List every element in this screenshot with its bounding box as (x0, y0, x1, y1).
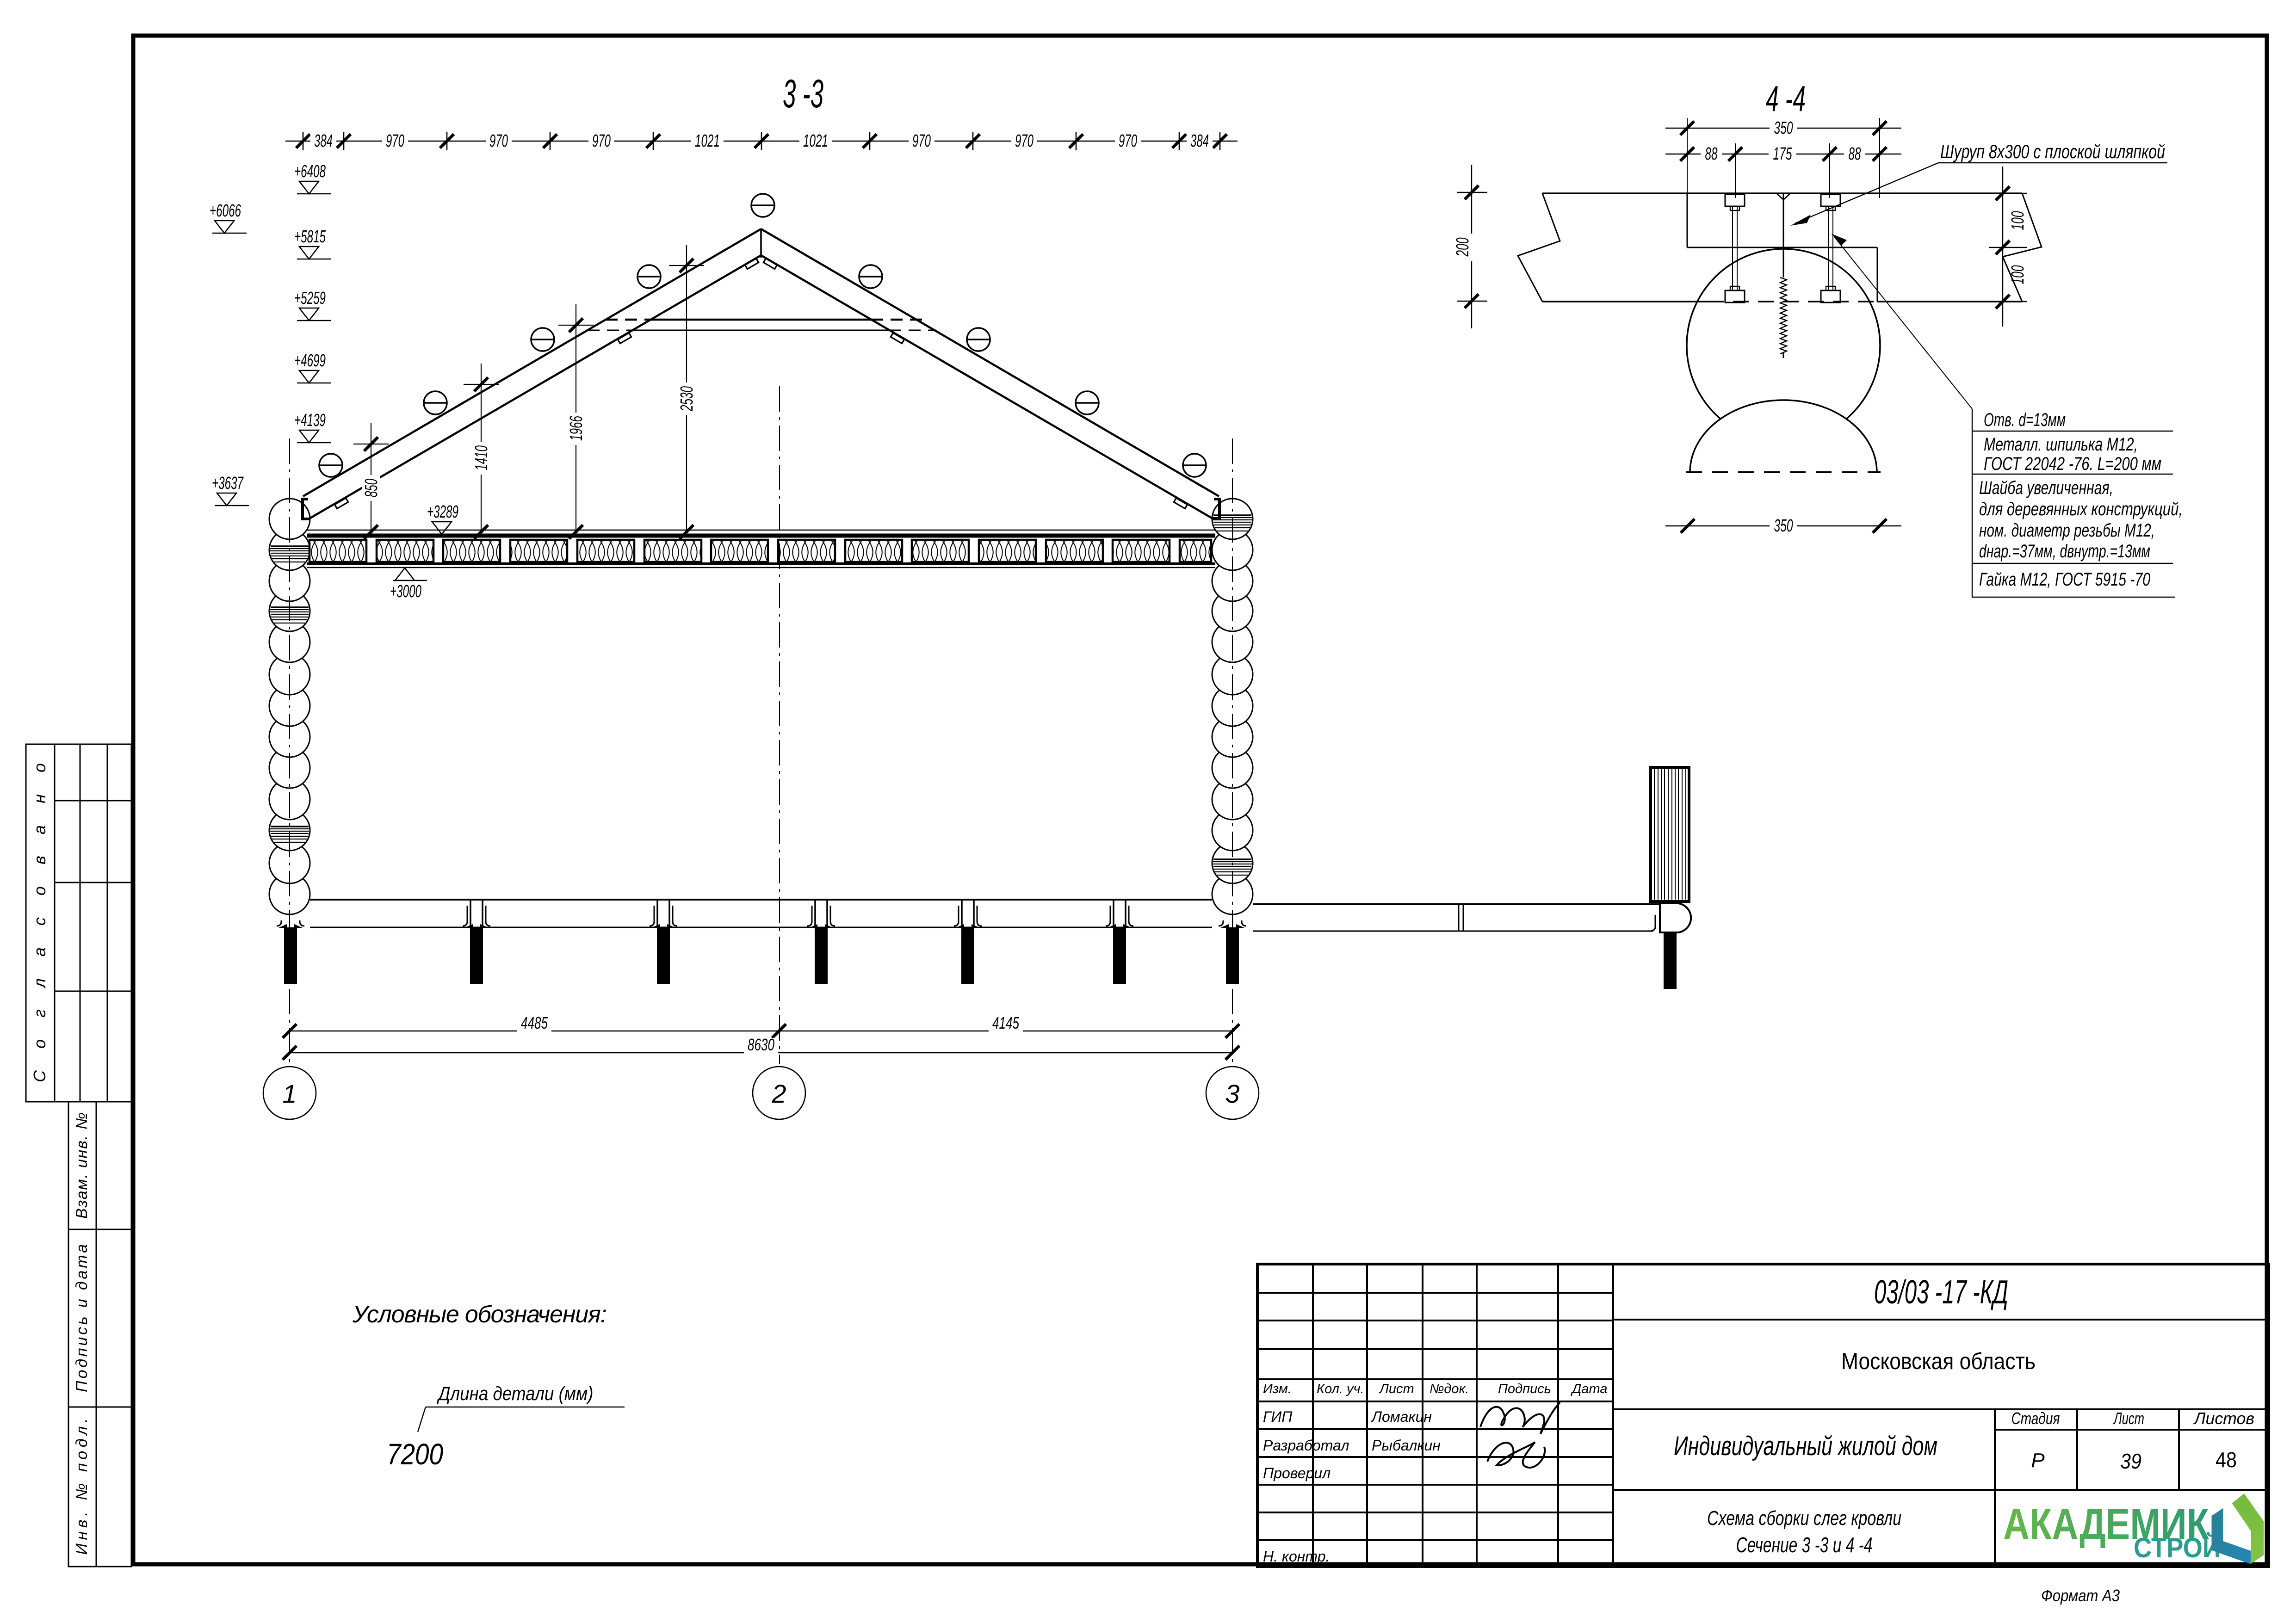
svg-text:Лист: Лист (1379, 1382, 1414, 1396)
svg-text:970: 970 (1119, 131, 1137, 151)
svg-text:Инв. № подл.: Инв. № подл. (73, 1419, 91, 1555)
svg-text:88: 88 (1849, 144, 1861, 164)
svg-text:Листов: Листов (2193, 1409, 2254, 1428)
svg-text:Кол. уч.: Кол. уч. (1317, 1382, 1364, 1396)
svg-text:Рыбалкин: Рыбалкин (1372, 1437, 1441, 1454)
svg-text:Гайка М12, ГОСТ 5915 -70: Гайка М12, ГОСТ 5915 -70 (1979, 569, 2150, 590)
svg-text:384: 384 (314, 131, 333, 151)
svg-text:3: 3 (1225, 1079, 1239, 1108)
svg-text:Формат А3: Формат А3 (2041, 1586, 2120, 1605)
svg-text:ном. диаметр резьбы М12,: ном. диаметр резьбы М12, (1979, 520, 2155, 541)
svg-text:+3637: +3637 (212, 474, 244, 493)
svg-text:970: 970 (592, 131, 611, 151)
svg-text:Схема сборки слег кровли: Схема сборки слег кровли (1707, 1507, 1901, 1530)
svg-text:Индивидуальный жилой дом: Индивидуальный жилой дом (1674, 1431, 1937, 1461)
svg-text:4145: 4145 (992, 1013, 1020, 1032)
svg-text:dнар.=37мм, dвнутр.=13мм: dнар.=37мм, dвнутр.=13мм (1979, 541, 2150, 562)
svg-text:Шуруп 8х300 с плоской шляпкой: Шуруп 8х300 с плоской шляпкой (1940, 141, 2165, 162)
svg-text:Ломакин: Ломакин (1371, 1408, 1432, 1425)
svg-text:Подпись: Подпись (1498, 1382, 1551, 1396)
svg-text:350: 350 (1774, 516, 1793, 536)
svg-text:+4139: +4139 (294, 411, 326, 430)
svg-text:Лист: Лист (2113, 1409, 2144, 1428)
svg-text:Разработал: Разработал (1263, 1437, 1349, 1454)
svg-text:1021: 1021 (803, 131, 828, 151)
svg-text:Дата: Дата (1571, 1382, 1608, 1396)
svg-text:Длина детали (мм): Длина детали (мм) (437, 1382, 594, 1404)
svg-text:Московская область: Московская область (1841, 1348, 2036, 1374)
svg-text:+6408: +6408 (294, 162, 326, 181)
svg-text:39: 39 (2120, 1449, 2141, 1473)
svg-text:Подпись и дата: Подпись и дата (73, 1244, 91, 1392)
svg-text:4485: 4485 (521, 1013, 548, 1032)
svg-text:4 -4: 4 -4 (1766, 78, 1806, 119)
svg-text:850: 850 (362, 479, 381, 497)
svg-text:970: 970 (489, 131, 508, 151)
svg-text:ГИП: ГИП (1263, 1408, 1293, 1425)
svg-text:№док.: №док. (1430, 1382, 1469, 1396)
svg-text:СТРОЙ: СТРОЙ (2134, 1532, 2221, 1563)
svg-text:Шайба увеличенная,: Шайба увеличенная, (1979, 478, 2113, 498)
svg-text:175: 175 (1773, 144, 1793, 164)
svg-text:Отв. d=13мм: Отв. d=13мм (1984, 410, 2066, 430)
svg-text:+5259: +5259 (294, 289, 326, 308)
svg-text:Р: Р (2031, 1449, 2045, 1472)
svg-text:100: 100 (2008, 211, 2028, 230)
svg-text:ГОСТ 22042 -76. L=200 мм: ГОСТ 22042 -76. L=200 мм (1984, 454, 2161, 474)
svg-text:7200: 7200 (387, 1438, 443, 1471)
svg-text:03/03 -17 -КД: 03/03 -17 -КД (1874, 1274, 2008, 1311)
svg-text:970: 970 (386, 131, 404, 151)
svg-text:384: 384 (1190, 131, 1209, 151)
svg-text:2530: 2530 (677, 386, 697, 412)
svg-text:для деревянных конструкций,: для деревянных конструкций, (1979, 499, 2183, 519)
svg-text:100: 100 (2008, 265, 2028, 284)
svg-text:1966: 1966 (567, 415, 586, 441)
svg-text:200: 200 (1453, 238, 1473, 257)
svg-text:350: 350 (1774, 118, 1793, 138)
svg-text:1021: 1021 (695, 131, 720, 151)
svg-text:48: 48 (2216, 1448, 2237, 1472)
svg-text:Изм.: Изм. (1263, 1382, 1292, 1396)
svg-text:+4699: +4699 (294, 351, 326, 370)
svg-text:+5815: +5815 (294, 227, 326, 247)
svg-text:Проверил: Проверил (1263, 1465, 1331, 1481)
svg-text:8630: 8630 (748, 1035, 774, 1054)
svg-text:1: 1 (282, 1079, 297, 1108)
svg-text:970: 970 (1015, 131, 1034, 151)
svg-text:88: 88 (1705, 144, 1718, 164)
svg-text:Н. контр.: Н. контр. (1263, 1548, 1330, 1565)
svg-text:Сечение 3 -3 и 4 -4: Сечение 3 -3 и 4 -4 (1736, 1533, 1873, 1557)
svg-text:+3000: +3000 (390, 582, 421, 601)
svg-text:2: 2 (771, 1079, 786, 1108)
svg-text:Металл. шпилька М12,: Металл. шпилька М12, (1984, 434, 2138, 455)
svg-text:+3289: +3289 (427, 502, 458, 522)
svg-text:Стадия: Стадия (2011, 1409, 2060, 1428)
svg-text:Взам. инв. №: Взам. инв. № (73, 1112, 91, 1219)
svg-text:3 -3: 3 -3 (783, 72, 823, 116)
svg-text:970: 970 (912, 131, 931, 151)
svg-text:1410: 1410 (472, 445, 491, 470)
svg-text:+6066: +6066 (210, 201, 241, 221)
svg-text:Условные обозначения:: Условные обозначения: (352, 1301, 607, 1328)
